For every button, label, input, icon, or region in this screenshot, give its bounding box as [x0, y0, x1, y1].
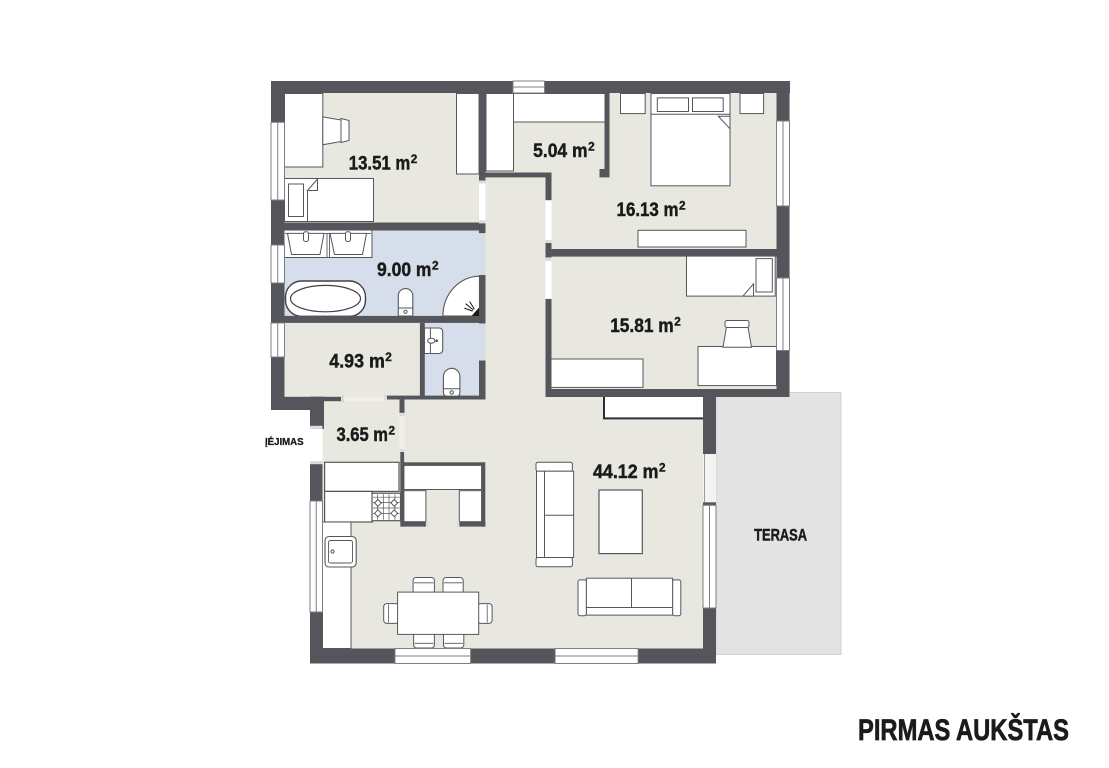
svg-text:2: 2 [389, 424, 396, 438]
svg-text:16.13 m: 16.13 m [617, 200, 679, 221]
svg-text:2: 2 [674, 315, 681, 329]
svg-text:2: 2 [432, 259, 439, 273]
svg-text:ĮĖJIMAS: ĮĖJIMAS [265, 435, 304, 448]
svg-text:4.93 m: 4.93 m [329, 352, 385, 373]
svg-text:9.00 m: 9.00 m [377, 260, 432, 281]
svg-text:15.81 m: 15.81 m [610, 316, 674, 337]
svg-text:2: 2 [659, 461, 666, 475]
svg-text:2: 2 [588, 140, 595, 154]
svg-text:5.04 m: 5.04 m [533, 141, 588, 162]
svg-text:TERASA: TERASA [754, 526, 807, 545]
svg-text:13.51 m: 13.51 m [349, 154, 411, 175]
svg-text:2: 2 [679, 199, 686, 213]
svg-text:PIRMAS AUKŠTAS: PIRMAS AUKŠTAS [858, 713, 1069, 747]
svg-text:44.12 m: 44.12 m [593, 462, 659, 483]
svg-text:2: 2 [411, 152, 418, 166]
svg-text:2: 2 [385, 350, 392, 364]
svg-text:3.65 m: 3.65 m [337, 425, 389, 446]
